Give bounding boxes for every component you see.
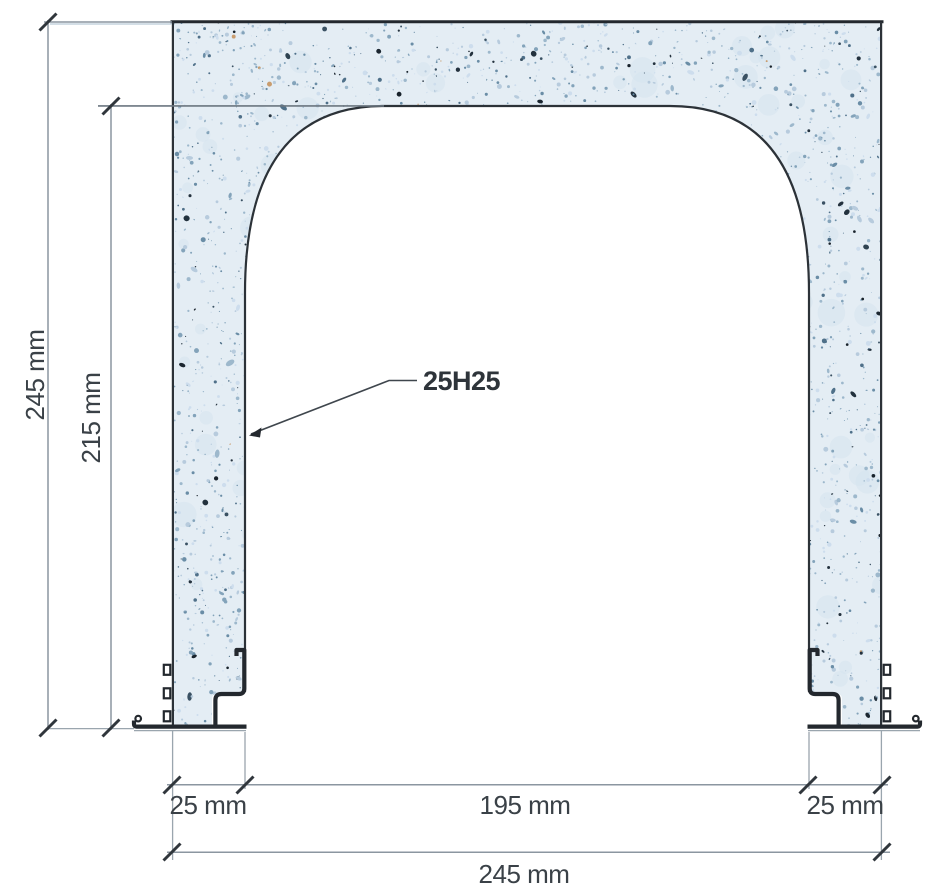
concrete-section — [171, 18, 892, 738]
plate-end-hook — [913, 716, 919, 722]
opening-edge — [245, 106, 809, 692]
rebar-label: 25H25 — [423, 366, 501, 396]
leader-line — [251, 381, 417, 435]
cross-section-diagram: 245 mm 215 mm 25 mm 195 mm 25 mm 245 mm … — [0, 0, 937, 891]
anchor-clips — [884, 665, 891, 722]
leader-arrowhead — [249, 428, 262, 438]
dimension-bottom-rows: 25 mm 195 mm 25 mm 245 mm — [48, 729, 890, 889]
concrete-fill — [172, 22, 882, 727]
rebar-callout: 25H25 — [249, 366, 501, 438]
plate-end-hook — [135, 716, 141, 722]
dim-label-right-wall: 25 mm — [807, 790, 884, 820]
dim-label-opening-height: 215 mm — [76, 373, 106, 464]
dim-label-overall-height: 245 mm — [20, 330, 50, 421]
dim-label-opening-width: 195 mm — [480, 790, 571, 820]
anchor-clips — [164, 665, 171, 722]
dim-label-overall-width: 245 mm — [479, 859, 570, 889]
dim-label-left-wall: 25 mm — [170, 790, 247, 820]
drawing-canvas: 245 mm 215 mm 25 mm 195 mm 25 mm 245 mm … — [0, 0, 937, 891]
